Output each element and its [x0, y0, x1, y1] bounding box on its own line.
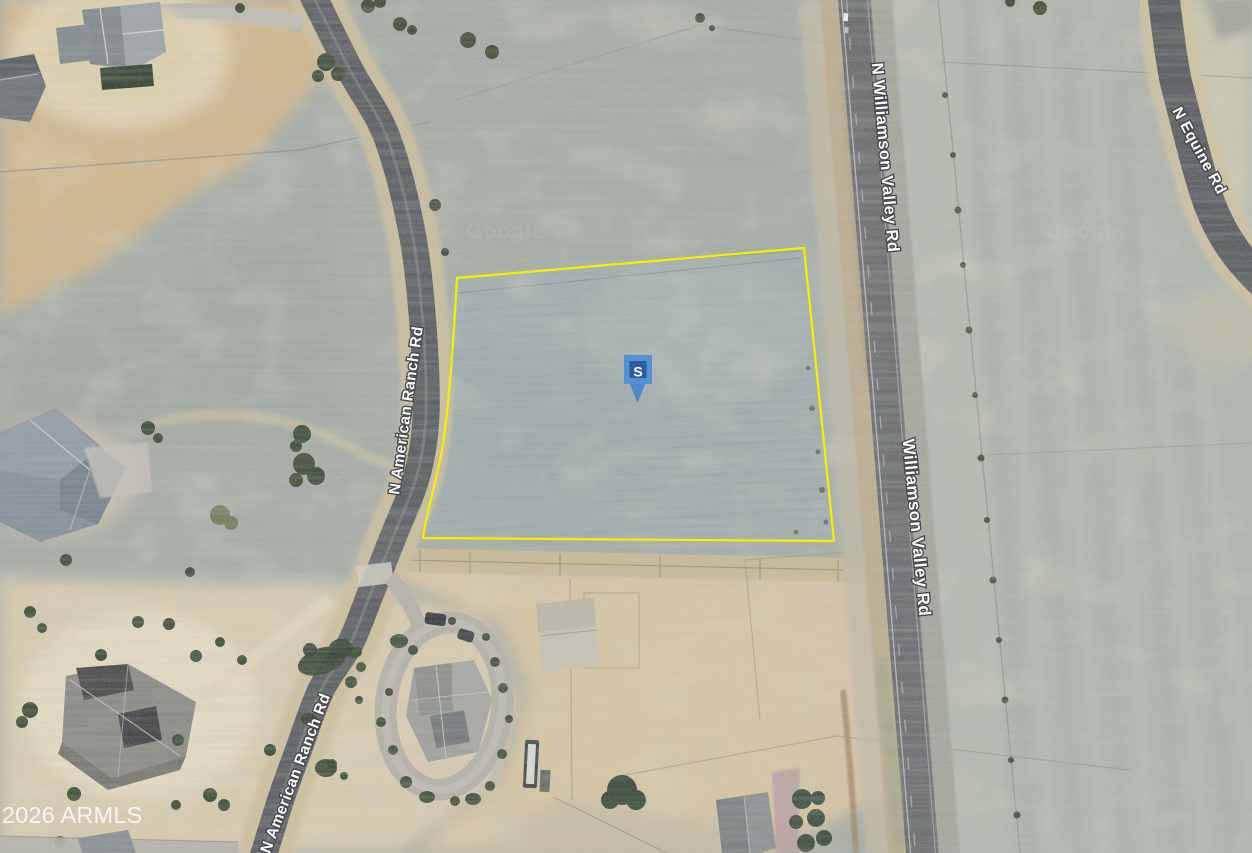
svg-text:2026 ARMLS: 2026 ARMLS: [2, 802, 142, 828]
svg-text:S: S: [633, 364, 642, 380]
